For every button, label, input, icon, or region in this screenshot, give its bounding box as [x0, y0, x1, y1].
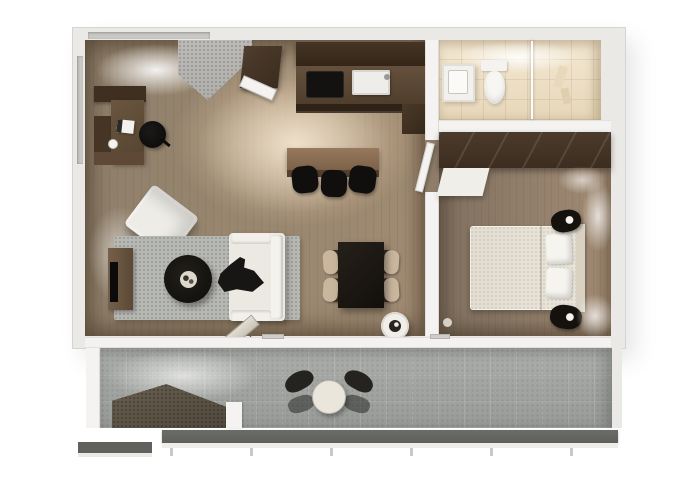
- wardrobe: [439, 132, 611, 168]
- sliding-door-handle: [262, 334, 284, 339]
- office-chair: [139, 121, 166, 148]
- dining-table: [338, 242, 384, 308]
- bar-stool: [347, 164, 377, 194]
- headboard: [576, 224, 585, 312]
- sliding-glass-doors: [85, 337, 611, 348]
- desk-cabinet: [94, 116, 111, 154]
- sofa-backrest: [271, 235, 283, 319]
- toilet: [484, 71, 505, 104]
- laptop: [116, 119, 134, 134]
- bar-stool: [291, 165, 320, 195]
- cup: [108, 139, 118, 149]
- balcony-side-wall: [612, 348, 622, 428]
- cooktop: [306, 71, 344, 98]
- planter-plant: [389, 320, 401, 332]
- pillow: [545, 233, 573, 264]
- bar-stool: [321, 170, 348, 198]
- railing-base: [78, 453, 152, 457]
- balcony-side-wall: [86, 348, 100, 428]
- sofa-armrest: [231, 233, 271, 244]
- terrace-table: [312, 380, 346, 414]
- vanity-basin: [448, 70, 468, 94]
- door-stop: [443, 318, 452, 327]
- service-shaft: [601, 40, 611, 120]
- balcony-railing: [162, 430, 618, 443]
- sliding-door-handle: [430, 334, 450, 339]
- desk-return: [94, 152, 144, 165]
- duvet-fold: [540, 226, 542, 310]
- shower-glass-panel: [531, 41, 533, 119]
- kitchen-upper-cabinets: [296, 42, 428, 66]
- toilet-tank: [481, 60, 507, 71]
- railing-posts: [170, 448, 618, 456]
- faucet: [384, 74, 390, 80]
- bathroom-wall: [439, 120, 611, 132]
- pillow: [545, 267, 573, 298]
- railing-segment: [78, 442, 152, 453]
- tv: [110, 262, 118, 302]
- coffee-table-decor: [180, 271, 197, 288]
- dresser: [437, 168, 490, 196]
- window-top-wall: [88, 32, 210, 39]
- window-left-wall: [77, 56, 83, 164]
- floor-plan-canvas: [0, 0, 700, 500]
- platform-ledge: [226, 402, 242, 428]
